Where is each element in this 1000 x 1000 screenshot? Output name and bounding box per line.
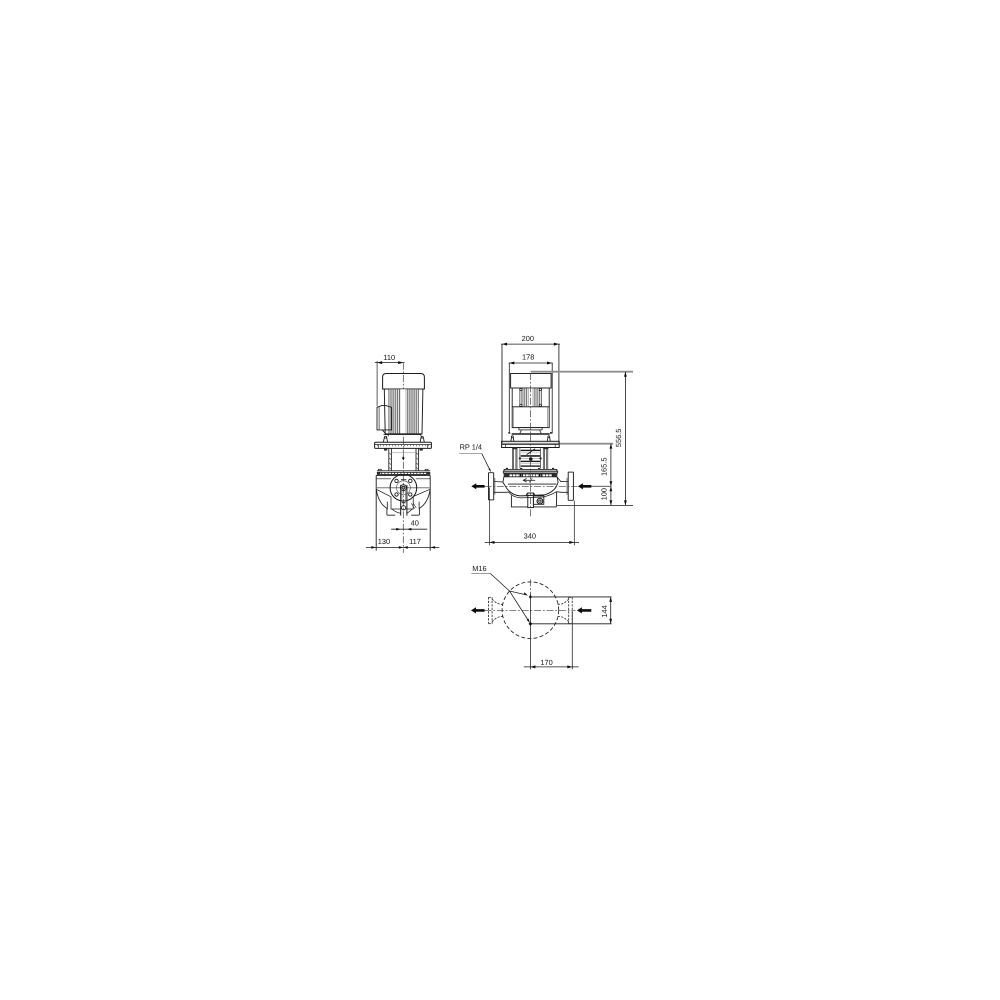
svg-text:110: 110 bbox=[383, 353, 395, 362]
svg-text:178: 178 bbox=[522, 353, 534, 362]
svg-text:556.5: 556.5 bbox=[614, 429, 623, 448]
svg-text:200: 200 bbox=[522, 334, 534, 343]
svg-text:144: 144 bbox=[600, 605, 609, 617]
svg-text:RP 1/4: RP 1/4 bbox=[460, 443, 482, 452]
svg-text:117: 117 bbox=[409, 537, 421, 546]
svg-text:170: 170 bbox=[540, 658, 552, 667]
svg-text:100: 100 bbox=[600, 488, 609, 500]
svg-text:130: 130 bbox=[378, 537, 390, 546]
svg-text:M16: M16 bbox=[472, 564, 486, 573]
svg-text:340: 340 bbox=[524, 532, 536, 541]
svg-text:40: 40 bbox=[411, 519, 419, 528]
svg-text:165.5: 165.5 bbox=[600, 458, 609, 477]
